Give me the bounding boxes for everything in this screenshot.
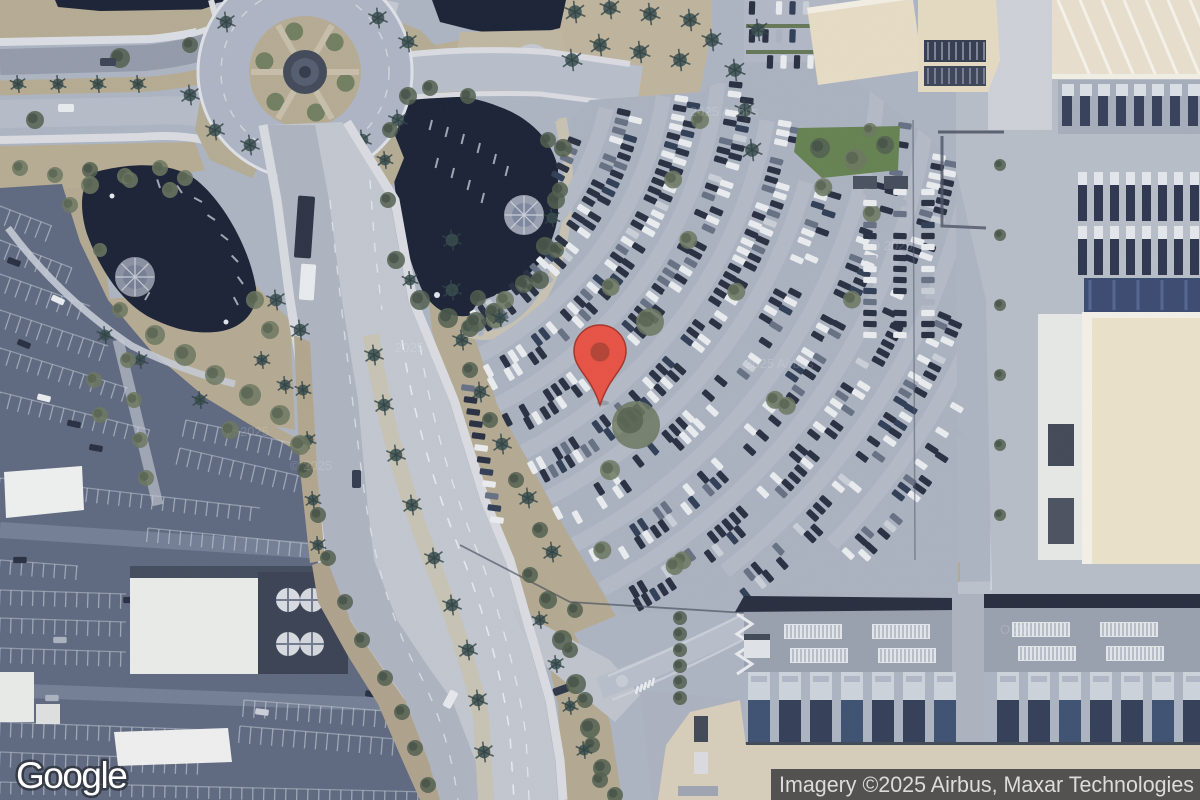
svg-text:Google: Google [16,755,126,796]
svg-text:Imagery ©2025 Airbus, Maxar Te: Imagery ©2025 Airbus, Maxar Technologies [779,772,1194,797]
